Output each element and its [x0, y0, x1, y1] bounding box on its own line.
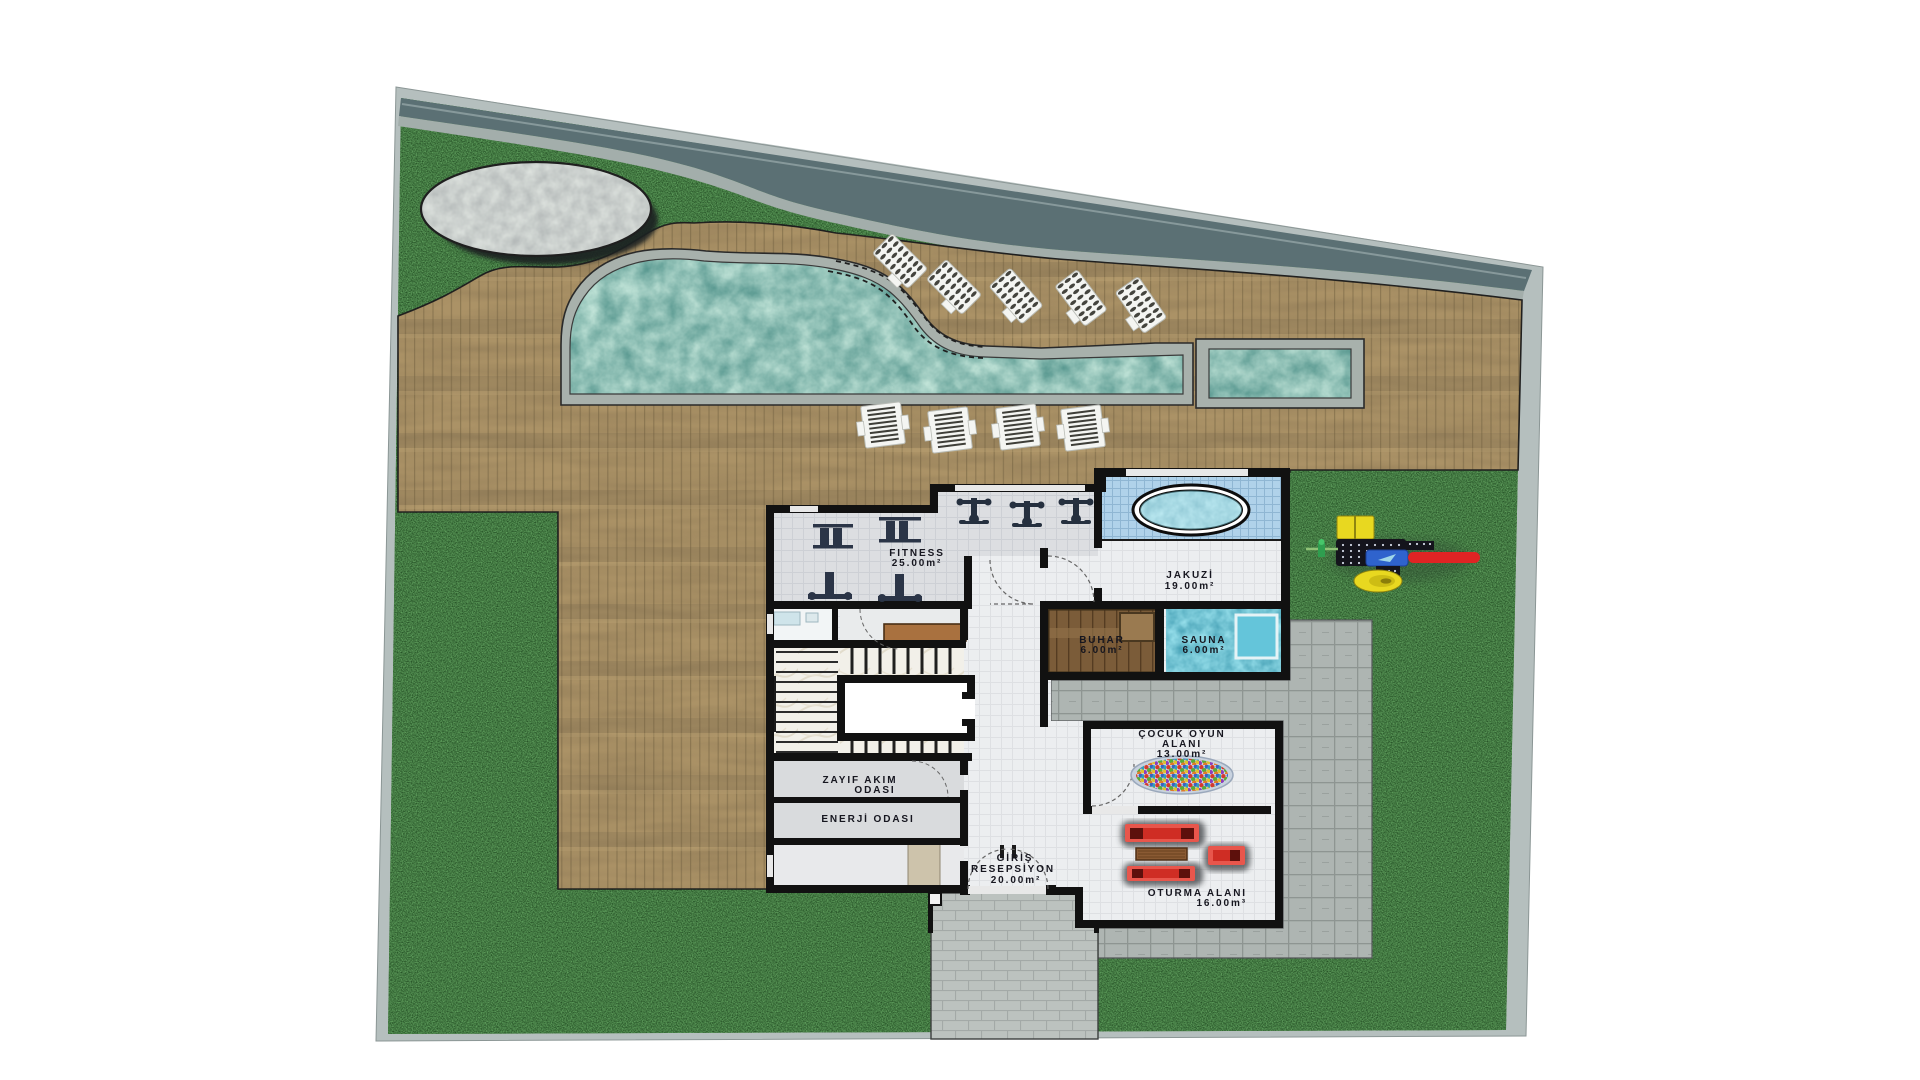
- svg-text:19.00m²: 19.00m²: [1165, 581, 1216, 592]
- svg-text:25.00m²: 25.00m²: [892, 558, 943, 569]
- svg-text:ODASI: ODASI: [854, 785, 895, 796]
- svg-text:6.00m²: 6.00m²: [1080, 645, 1123, 656]
- svg-text:RESEPSİYON: RESEPSİYON: [971, 862, 1055, 875]
- svg-text:GİRİŞ: GİRİŞ: [997, 851, 1034, 864]
- svg-text:13.00m²: 13.00m²: [1157, 749, 1208, 760]
- svg-text:ENERJİ ODASI: ENERJİ ODASI: [821, 812, 914, 825]
- svg-text:20.00m²: 20.00m²: [991, 875, 1042, 886]
- svg-text:16.00m³: 16.00m³: [1196, 898, 1247, 909]
- svg-text:6.00m²: 6.00m²: [1182, 645, 1225, 656]
- svg-text:JAKUZİ: JAKUZİ: [1166, 568, 1214, 581]
